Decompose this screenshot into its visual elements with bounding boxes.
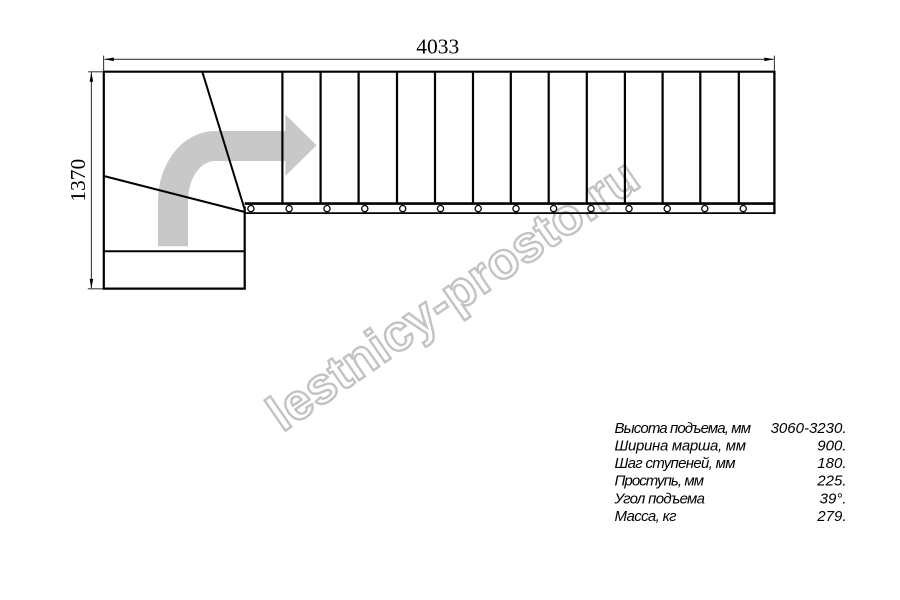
svg-text:180.: 180.: [817, 455, 846, 472]
svg-text:Угол подъема: Угол подъема: [614, 490, 706, 507]
svg-text:Высота подъема, мм: Высота подъема, мм: [615, 420, 752, 437]
svg-text:1370: 1370: [66, 159, 90, 202]
svg-text:Ширина марша, мм: Ширина марша, мм: [615, 438, 747, 455]
svg-text:3060-3230.: 3060-3230.: [771, 420, 847, 437]
svg-text:225.: 225.: [816, 473, 846, 490]
svg-text:4033: 4033: [416, 35, 459, 59]
svg-text:900.: 900.: [817, 438, 846, 455]
svg-text:Масса, кг: Масса, кг: [615, 508, 678, 525]
svg-text:Шаг ступеней, мм: Шаг ступеней, мм: [615, 455, 736, 472]
svg-text:39°.: 39°.: [820, 490, 847, 507]
svg-text:279.: 279.: [816, 508, 846, 525]
svg-text:Проступь, мм: Проступь, мм: [615, 473, 705, 490]
